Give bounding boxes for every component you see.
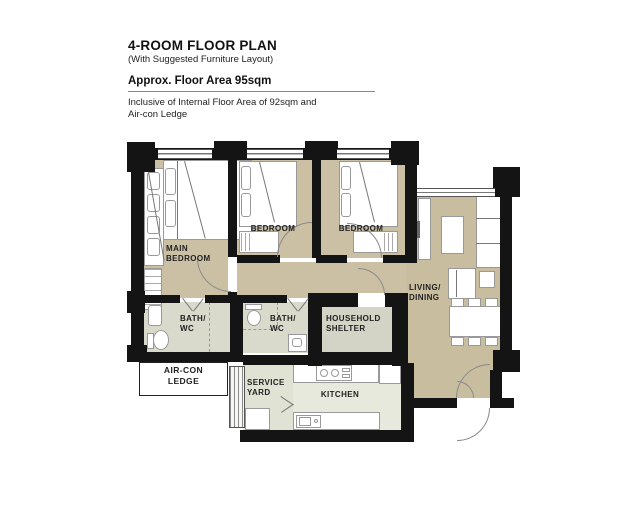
label-line: AIR-CON — [139, 365, 228, 376]
label-line: WC — [270, 324, 296, 334]
floor-plan-page: 4-ROOM FLOOR PLAN (With Suggested Furnit… — [0, 0, 642, 519]
drying-rack-icon — [229, 366, 245, 428]
wall — [240, 430, 401, 442]
washing-machine-icon — [245, 408, 270, 430]
stove-control-icon — [342, 368, 350, 372]
floor-area-heading: Approx. Floor Area 95sqm — [128, 75, 271, 87]
chair-icon — [485, 337, 498, 346]
wall — [322, 293, 358, 307]
shower-drain-icon — [292, 338, 302, 347]
dresser-icon — [144, 268, 162, 310]
note-line-2: Air-con Ledge — [128, 109, 317, 121]
sofa-icon — [476, 194, 501, 268]
wall — [243, 355, 308, 365]
faucet-icon — [314, 419, 318, 423]
armchair-back-line — [456, 270, 457, 297]
fridge-icon — [379, 363, 401, 384]
coffee-table-icon — [441, 216, 464, 254]
pillar — [127, 291, 145, 313]
label-living-dining: LIVING/ DINING — [409, 283, 441, 303]
label-line: MAIN — [166, 244, 211, 254]
chair-icon — [451, 337, 464, 346]
wall — [383, 255, 417, 263]
label-line: BEDROOM — [166, 254, 211, 264]
pillar — [127, 142, 155, 172]
pillow-icon — [241, 193, 251, 217]
shower-divider-line — [209, 302, 210, 352]
chair-icon — [468, 337, 481, 346]
label-line: DINING — [409, 293, 441, 303]
label-main-bedroom: MAIN BEDROOM — [166, 244, 211, 264]
label-line: BATH/ — [180, 314, 206, 324]
toilet-icon — [247, 310, 261, 326]
wall — [490, 370, 502, 400]
floor-area-note: Inclusive of Internal Floor Area of 92sq… — [128, 97, 317, 121]
pillar — [493, 350, 520, 372]
label-line: BATH/ — [270, 314, 296, 324]
wardrobe-hanging-icon — [241, 233, 253, 251]
label-line: YARD — [247, 388, 285, 398]
wall — [308, 352, 408, 365]
label-bedroom3: BEDROOM — [321, 224, 401, 234]
pillar — [305, 141, 338, 158]
window — [337, 149, 389, 159]
sofa-cushion-line — [476, 243, 501, 244]
wall — [312, 148, 321, 258]
wall — [500, 168, 512, 372]
divider-line — [128, 91, 375, 92]
door-opening — [358, 293, 385, 307]
sofa-cushion-line — [476, 218, 501, 219]
bed-headboard-line — [177, 161, 178, 239]
dining-table-icon — [449, 306, 501, 337]
page-title: 4-ROOM FLOOR PLAN — [128, 38, 277, 53]
wall — [131, 148, 144, 362]
side-table-icon — [479, 271, 495, 288]
wall — [385, 293, 392, 307]
pillow-icon — [241, 166, 251, 190]
label-household-shelter: HOUSEHOLD SHELTER — [326, 314, 381, 334]
pillow-icon — [341, 193, 351, 217]
burner-icon — [331, 369, 339, 377]
label-line: LEDGE — [139, 376, 228, 387]
window — [247, 149, 303, 159]
wall — [401, 363, 414, 442]
main-entrance-opening — [457, 398, 490, 408]
window — [417, 188, 495, 197]
stove-control-icon — [342, 374, 350, 378]
page-subtitle: (With Suggested Furniture Layout) — [128, 54, 273, 65]
pillar — [391, 141, 419, 165]
wall — [205, 295, 287, 303]
sink-icon — [148, 305, 162, 326]
label-line: SHELTER — [326, 324, 381, 334]
label-line: WC — [180, 324, 206, 334]
pillar — [214, 141, 247, 158]
wardrobe-shelf-icon — [147, 238, 160, 256]
wall — [316, 255, 347, 263]
wardrobe-hanging-icon — [384, 233, 396, 251]
label-line: SERVICE — [247, 378, 285, 388]
pillow-icon — [165, 168, 176, 195]
label-line: LIVING/ — [409, 283, 441, 293]
pillow-icon — [341, 166, 351, 190]
armchair-icon — [448, 268, 476, 299]
wall — [131, 352, 243, 362]
label-kitchen: KITCHEN — [300, 390, 380, 400]
label-line: HOUSEHOLD — [326, 314, 381, 324]
label-bath2: BATH/ WC — [270, 314, 296, 334]
pillar — [127, 345, 147, 362]
note-line-1: Inclusive of Internal Floor Area of 92sq… — [128, 97, 317, 109]
window — [158, 149, 212, 159]
sink-basin-icon — [299, 417, 311, 426]
label-bedroom2: BEDROOM — [237, 224, 309, 234]
burner-icon — [320, 369, 328, 377]
toilet-icon — [153, 330, 169, 350]
pillow-icon — [165, 200, 176, 227]
label-service-yard: SERVICE YARD — [247, 378, 285, 398]
label-bath1: BATH/ WC — [180, 314, 206, 334]
label-aircon-ledge: AIR-CON LEDGE — [139, 365, 228, 387]
wall — [414, 398, 457, 408]
pillar — [493, 167, 520, 197]
wall — [228, 148, 237, 258]
door-arc-entrance-outer — [457, 408, 490, 441]
